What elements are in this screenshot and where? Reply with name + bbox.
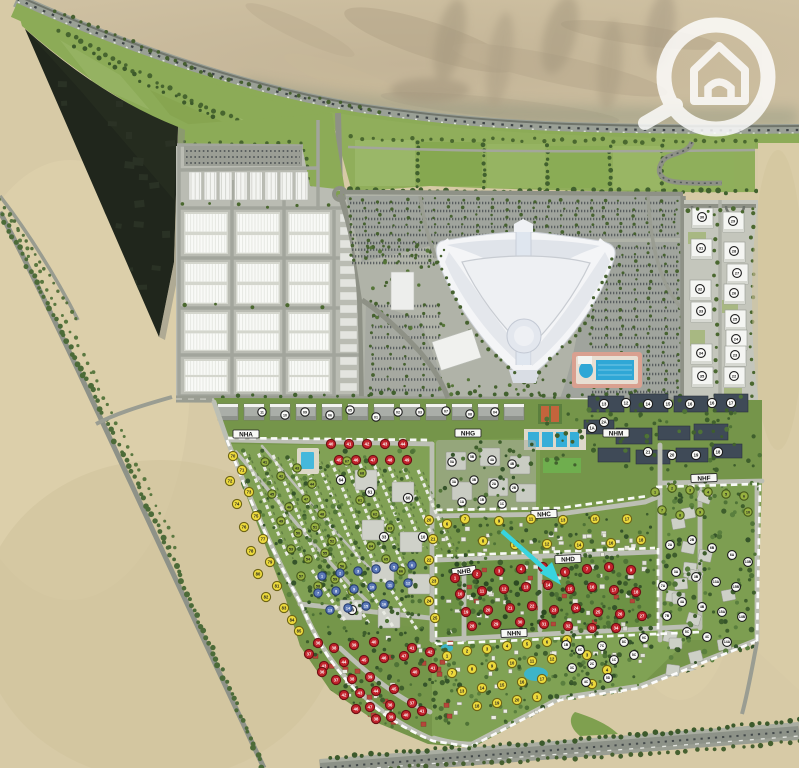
svg-text:46: 46 [382, 656, 387, 661]
svg-text:5D: 5D [606, 676, 611, 680]
svg-text:23: 23 [432, 579, 437, 584]
svg-text:14: 14 [646, 402, 651, 407]
svg-text:7: 7 [317, 591, 319, 595]
svg-text:19: 19 [694, 453, 699, 458]
svg-text:73: 73 [247, 490, 252, 495]
svg-text:53: 53 [289, 547, 293, 551]
svg-text:50: 50 [296, 531, 300, 535]
svg-text:72: 72 [228, 479, 233, 484]
svg-text:32: 32 [566, 624, 571, 629]
svg-text:15: 15 [364, 604, 368, 608]
svg-text:4A: 4A [490, 458, 495, 462]
svg-text:46: 46 [287, 505, 291, 509]
svg-text:12: 12 [406, 581, 410, 585]
svg-text:40: 40 [404, 713, 409, 718]
svg-text:11: 11 [529, 517, 534, 522]
svg-text:10: 10 [283, 413, 287, 417]
svg-text:37: 37 [334, 678, 339, 683]
svg-text:3A: 3A [452, 480, 457, 484]
svg-text:74: 74 [235, 502, 240, 507]
svg-text:12: 12 [545, 542, 550, 547]
svg-text:68: 68 [360, 471, 364, 475]
svg-text:2: 2 [339, 571, 341, 575]
svg-text:15B: 15B [733, 585, 740, 589]
svg-text:9: 9 [353, 587, 355, 591]
svg-text:6: 6 [743, 494, 745, 498]
svg-text:9C: 9C [642, 636, 647, 640]
svg-text:45: 45 [362, 658, 367, 663]
svg-text:47: 47 [371, 458, 376, 463]
svg-text:12: 12 [624, 401, 629, 406]
svg-text:16: 16 [688, 402, 693, 407]
svg-text:15: 15 [500, 683, 505, 688]
svg-text:5A: 5A [450, 460, 455, 464]
svg-text:6C: 6C [578, 648, 583, 652]
svg-text:3C: 3C [570, 666, 575, 670]
svg-text:8: 8 [679, 513, 681, 517]
svg-text:26: 26 [732, 290, 737, 295]
svg-text:17: 17 [540, 677, 545, 682]
svg-text:81: 81 [275, 584, 280, 589]
svg-text:20: 20 [427, 518, 432, 523]
svg-text:21: 21 [431, 537, 436, 542]
svg-text:33: 33 [699, 308, 704, 313]
svg-text:49: 49 [405, 458, 410, 463]
svg-text:41: 41 [420, 709, 425, 714]
svg-text:85: 85 [297, 629, 302, 634]
svg-text:28: 28 [470, 624, 475, 629]
svg-text:5B: 5B [470, 455, 475, 459]
svg-text:12: 12 [550, 657, 555, 662]
svg-text:NHN: NHN [507, 630, 521, 637]
svg-text:13A: 13A [713, 580, 720, 584]
svg-text:1C: 1C [612, 658, 617, 662]
svg-text:44: 44 [342, 660, 347, 665]
svg-text:14: 14 [577, 543, 582, 548]
svg-text:59: 59 [333, 577, 337, 581]
svg-text:18: 18 [639, 538, 644, 543]
svg-text:78: 78 [249, 549, 254, 554]
svg-text:83: 83 [282, 606, 287, 611]
svg-text:19: 19 [495, 701, 500, 706]
svg-text:39: 39 [389, 715, 394, 720]
svg-text:79: 79 [268, 560, 273, 565]
svg-text:41: 41 [347, 442, 352, 447]
svg-text:09: 09 [303, 410, 307, 414]
svg-text:NHA: NHA [239, 431, 253, 438]
svg-text:61: 61 [368, 490, 373, 495]
svg-text:13: 13 [328, 608, 332, 612]
svg-text:31: 31 [542, 622, 547, 627]
svg-text:42: 42 [428, 650, 433, 655]
svg-text:38: 38 [374, 717, 379, 722]
svg-text:45: 45 [270, 492, 274, 496]
svg-text:05: 05 [348, 408, 352, 412]
svg-text:41: 41 [431, 666, 436, 671]
svg-text:7B: 7B [665, 614, 670, 618]
svg-text:82: 82 [264, 595, 269, 600]
svg-text:02: 02 [396, 410, 400, 414]
svg-text:46: 46 [354, 458, 359, 463]
svg-text:7: 7 [661, 508, 663, 512]
svg-text:37: 37 [307, 652, 312, 657]
svg-text:18: 18 [716, 450, 721, 455]
svg-text:4A: 4A [680, 600, 685, 604]
svg-text:30: 30 [518, 620, 523, 625]
svg-text:16: 16 [590, 585, 595, 590]
svg-text:1A: 1A [460, 500, 465, 504]
svg-text:1: 1 [321, 574, 323, 578]
svg-text:6: 6 [411, 563, 413, 567]
svg-text:17: 17 [625, 517, 630, 522]
svg-text:39: 39 [368, 675, 373, 680]
svg-text:1: 1 [654, 490, 656, 494]
svg-text:77: 77 [261, 537, 266, 542]
svg-text:NHD: NHD [561, 556, 576, 564]
svg-text:29: 29 [494, 622, 499, 627]
svg-text:15: 15 [666, 402, 671, 407]
svg-text:20: 20 [486, 608, 491, 613]
svg-text:04: 04 [493, 410, 497, 414]
svg-text:36: 36 [388, 703, 393, 708]
svg-text:45: 45 [337, 458, 342, 463]
svg-text:6A: 6A [730, 553, 735, 557]
svg-text:14: 14 [546, 583, 551, 588]
svg-text:16: 16 [520, 680, 525, 685]
svg-text:4B: 4B [510, 462, 515, 466]
svg-text:10: 10 [746, 510, 750, 514]
svg-text:20: 20 [515, 698, 520, 703]
svg-text:2A: 2A [492, 482, 497, 486]
svg-text:2: 2 [671, 486, 673, 490]
svg-text:66: 66 [399, 569, 403, 573]
svg-text:42: 42 [279, 474, 283, 478]
svg-text:35: 35 [700, 373, 705, 378]
svg-text:28: 28 [732, 248, 737, 253]
svg-text:46: 46 [354, 707, 359, 712]
svg-text:63: 63 [388, 526, 392, 530]
svg-text:33: 33 [382, 535, 387, 540]
svg-text:18: 18 [475, 704, 480, 709]
svg-text:07: 07 [444, 409, 448, 413]
svg-text:16: 16 [609, 541, 614, 546]
svg-text:21: 21 [508, 606, 513, 611]
svg-text:4C: 4C [584, 680, 589, 684]
svg-text:34: 34 [699, 350, 704, 355]
svg-text:25: 25 [433, 616, 438, 621]
svg-text:NHC: NHC [537, 511, 552, 519]
svg-text:40: 40 [329, 442, 334, 447]
svg-text:10: 10 [421, 535, 426, 540]
svg-text:3B: 3B [694, 575, 699, 579]
svg-text:60: 60 [406, 496, 411, 501]
svg-text:24: 24 [574, 606, 579, 611]
svg-text:17: 17 [729, 401, 734, 406]
svg-text:56: 56 [340, 564, 344, 568]
svg-text:16: 16 [382, 602, 386, 606]
svg-text:43: 43 [383, 442, 388, 447]
svg-text:11: 11 [530, 659, 535, 664]
svg-text:75: 75 [254, 514, 259, 519]
svg-text:21: 21 [646, 450, 651, 455]
svg-text:18: 18 [634, 590, 639, 595]
svg-text:20: 20 [670, 453, 675, 458]
svg-text:47: 47 [402, 654, 407, 659]
svg-text:38: 38 [350, 677, 355, 682]
svg-text:7C: 7C [600, 644, 605, 648]
svg-text:03: 03 [418, 410, 422, 414]
svg-text:65: 65 [384, 557, 388, 561]
svg-text:6B: 6B [710, 546, 715, 550]
svg-text:4C: 4C [705, 635, 710, 639]
svg-text:80: 80 [256, 572, 261, 577]
svg-text:2C: 2C [590, 662, 595, 666]
svg-text:84: 84 [290, 618, 295, 623]
svg-text:36: 36 [320, 670, 325, 675]
svg-text:11: 11 [480, 589, 485, 594]
svg-text:42: 42 [365, 442, 370, 447]
svg-text:49: 49 [279, 519, 283, 523]
svg-text:26: 26 [618, 612, 623, 617]
svg-text:33: 33 [590, 626, 595, 631]
svg-text:14A: 14A [724, 640, 731, 644]
svg-text:51: 51 [313, 525, 317, 529]
svg-text:08: 08 [468, 412, 472, 416]
svg-text:43: 43 [358, 691, 363, 696]
svg-text:32: 32 [698, 286, 703, 291]
svg-text:10: 10 [458, 592, 463, 597]
svg-text:5C: 5C [685, 630, 690, 634]
svg-text:12: 12 [502, 587, 507, 592]
svg-text:15: 15 [593, 517, 598, 522]
svg-text:42: 42 [342, 693, 347, 698]
svg-text:76: 76 [242, 525, 247, 530]
svg-text:34: 34 [614, 626, 619, 631]
svg-text:13: 13 [524, 585, 529, 590]
svg-text:47: 47 [304, 497, 308, 501]
svg-text:13: 13 [561, 518, 566, 523]
svg-text:01: 01 [374, 415, 378, 419]
svg-text:27: 27 [735, 270, 740, 275]
svg-text:38: 38 [332, 646, 337, 651]
svg-text:5C: 5C [632, 653, 637, 657]
svg-text:NHM: NHM [609, 430, 624, 437]
svg-text:22: 22 [732, 373, 737, 378]
svg-text:52: 52 [330, 539, 334, 543]
svg-text:55: 55 [323, 551, 327, 555]
svg-text:44: 44 [374, 689, 379, 694]
svg-text:31: 31 [699, 245, 704, 250]
svg-text:2A: 2A [668, 543, 673, 547]
svg-text:61: 61 [358, 498, 362, 502]
svg-text:2B: 2B [690, 538, 695, 542]
svg-text:57: 57 [299, 574, 303, 578]
svg-text:2B: 2B [512, 486, 517, 490]
svg-text:16: 16 [710, 401, 715, 406]
svg-text:36: 36 [316, 641, 321, 646]
svg-text:4B: 4B [700, 605, 705, 609]
svg-text:3: 3 [357, 569, 359, 573]
svg-text:9: 9 [699, 510, 701, 514]
svg-text:8: 8 [335, 589, 337, 593]
svg-text:62: 62 [373, 512, 377, 516]
svg-text:2A: 2A [601, 420, 606, 425]
svg-text:58: 58 [316, 584, 320, 588]
svg-text:24: 24 [734, 336, 739, 341]
svg-text:7A: 7A [661, 584, 666, 588]
svg-text:23: 23 [552, 608, 557, 613]
svg-text:1A: 1A [589, 426, 594, 431]
svg-text:11: 11 [388, 583, 392, 587]
svg-text:47: 47 [368, 705, 373, 710]
svg-text:8C: 8C [622, 640, 627, 644]
svg-text:13B: 13B [745, 560, 752, 564]
svg-text:3B: 3B [472, 478, 477, 482]
svg-text:06: 06 [328, 413, 332, 417]
svg-text:3: 3 [689, 488, 691, 492]
svg-text:NHG: NHG [461, 430, 475, 437]
svg-text:14B: 14B [739, 615, 746, 619]
svg-text:17: 17 [612, 588, 617, 593]
svg-text:15A: 15A [719, 610, 726, 614]
svg-text:14: 14 [480, 686, 485, 691]
svg-text:11: 11 [260, 410, 264, 414]
svg-text:64: 64 [339, 478, 344, 483]
svg-text:19: 19 [464, 610, 469, 615]
svg-text:39: 39 [352, 643, 357, 648]
svg-text:25: 25 [596, 610, 601, 615]
svg-text:22: 22 [427, 558, 432, 563]
svg-text:24: 24 [427, 599, 432, 604]
svg-text:22: 22 [530, 604, 535, 609]
svg-text:1C: 1C [500, 502, 505, 506]
svg-text:37: 37 [410, 701, 415, 706]
svg-text:48: 48 [388, 458, 393, 463]
svg-text:5: 5 [393, 565, 395, 569]
svg-text:29: 29 [731, 218, 736, 223]
svg-text:48: 48 [320, 512, 324, 516]
svg-text:10: 10 [370, 585, 374, 589]
svg-text:23: 23 [733, 352, 738, 357]
svg-text:NHF: NHF [697, 475, 710, 482]
svg-text:5: 5 [725, 492, 727, 496]
svg-text:3A: 3A [674, 570, 679, 574]
svg-text:40: 40 [413, 670, 418, 675]
svg-text:67: 67 [345, 459, 349, 463]
svg-text:15: 15 [568, 587, 573, 592]
svg-text:45: 45 [392, 687, 397, 692]
svg-text:41: 41 [410, 646, 415, 651]
svg-text:25: 25 [733, 316, 738, 321]
svg-text:30: 30 [700, 214, 705, 219]
svg-text:1B: 1B [480, 498, 485, 502]
svg-text:40: 40 [372, 640, 377, 645]
svg-text:41: 41 [263, 460, 267, 464]
svg-text:71: 71 [240, 468, 245, 473]
svg-text:13: 13 [460, 689, 465, 694]
svg-text:13: 13 [602, 402, 607, 407]
svg-text:70: 70 [231, 454, 236, 459]
svg-text:1B: 1B [564, 643, 569, 647]
svg-text:44: 44 [401, 442, 406, 447]
svg-text:10: 10 [510, 661, 515, 666]
svg-text:43: 43 [295, 466, 299, 470]
svg-text:27: 27 [640, 614, 645, 619]
